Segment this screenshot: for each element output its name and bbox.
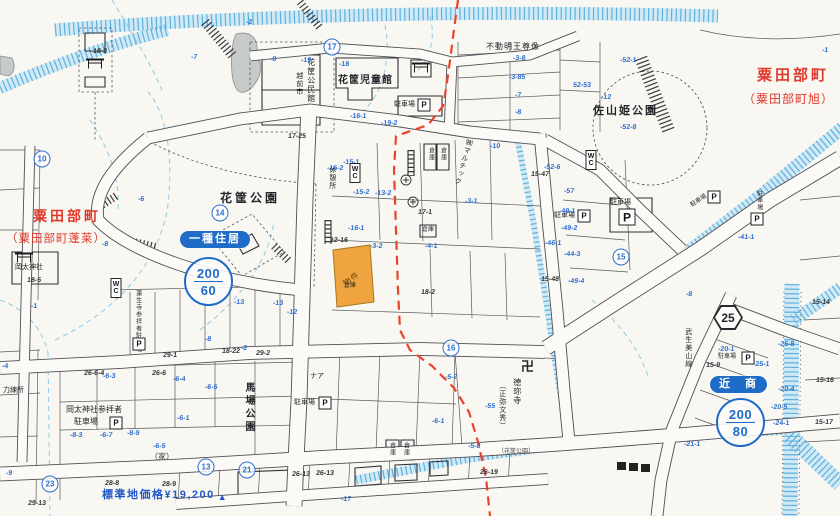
price-text: 標準地価格¥19,200 [102, 486, 215, 502]
region-label-top-right: 粟田部町 [757, 64, 829, 85]
region-sublabel-west: （粟田部町蓬莱） [6, 230, 106, 246]
far-value: 200 [197, 267, 220, 280]
zoning-badge-residential: 一種住居 [180, 231, 250, 248]
ratio-divider [726, 422, 756, 423]
residential-map-canvas[interactable]: 物件 花筐児童館越前市花筐公民館不動明王尊像佐山姫公園花筐公園休憩所㈱マルチック… [0, 0, 840, 516]
route-number: 25 [715, 307, 741, 328]
zoning-ratio-residential: 200 60 [184, 257, 233, 306]
ratio-divider [194, 281, 224, 282]
price-marker-icon: ▲ [218, 493, 228, 502]
region-label-west: 粟田部町 [33, 206, 101, 226]
standard-land-price-note: 標準地価格¥19,200 ▲ [102, 486, 228, 502]
bcr-value: 60 [201, 284, 216, 297]
zoning-badge-commercial: 近 商 [710, 376, 767, 393]
zoning-ratio-commercial: 200 80 [716, 398, 765, 447]
map-base-svg: 物件 [0, 0, 840, 516]
far-value: 200 [729, 408, 752, 421]
bcr-value: 80 [733, 425, 748, 438]
highlighted-property-parcel[interactable]: 物件 [333, 245, 374, 307]
region-sublabel-top-right: （粟田部町旭） [743, 90, 834, 107]
